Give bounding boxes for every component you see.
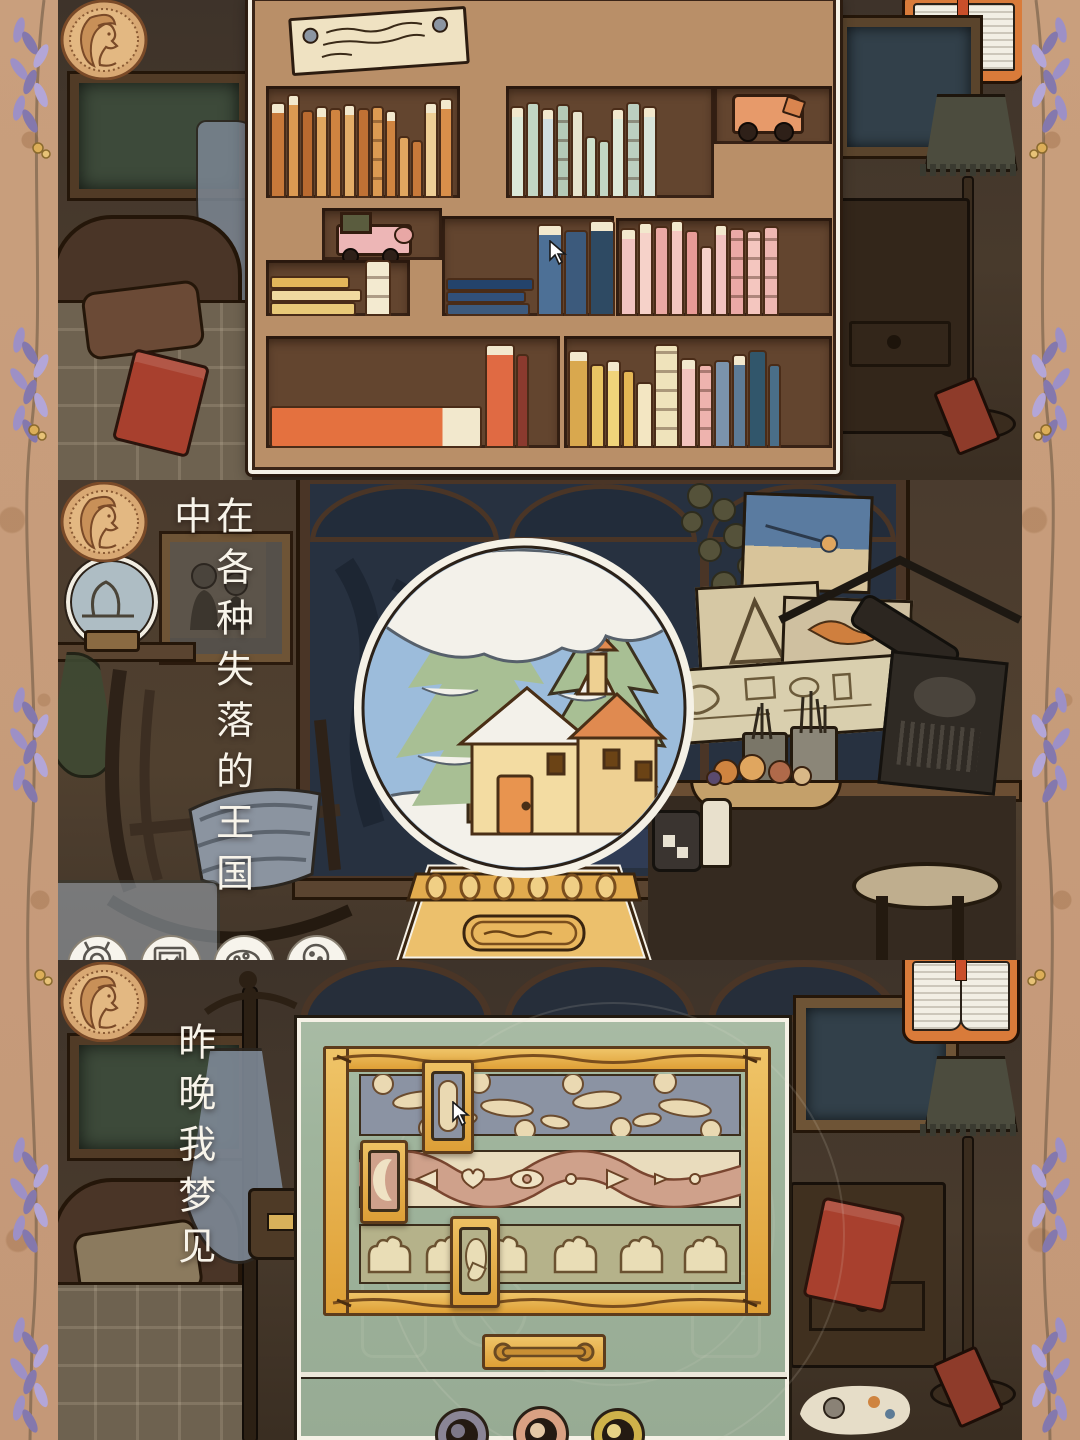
mini-snowglobe-base bbox=[84, 630, 140, 652]
book-spine[interactable] bbox=[371, 106, 384, 198]
shelf-compartment-toy-train[interactable] bbox=[322, 208, 442, 260]
book-spine[interactable] bbox=[485, 344, 515, 448]
book-flat[interactable] bbox=[270, 276, 350, 289]
book-spine[interactable] bbox=[589, 220, 615, 316]
book-spine[interactable] bbox=[357, 108, 370, 198]
frame-left-bar bbox=[323, 1046, 349, 1316]
book-flat[interactable] bbox=[270, 302, 356, 316]
book-spine[interactable] bbox=[398, 136, 410, 198]
book-spine[interactable] bbox=[411, 140, 423, 198]
shelf-note[interactable] bbox=[288, 6, 470, 76]
found-icons-row bbox=[66, 935, 366, 960]
book-spine[interactable] bbox=[638, 222, 653, 316]
book-spine[interactable] bbox=[748, 350, 767, 448]
found-object-button-snowglobe[interactable] bbox=[285, 935, 349, 960]
picture-icon bbox=[146, 938, 194, 960]
book-spine[interactable] bbox=[568, 350, 589, 448]
panel-machine-scene: 昨晚我梦见 bbox=[0, 960, 1080, 1440]
book-spine[interactable] bbox=[516, 354, 529, 448]
pattern-machine bbox=[297, 1018, 789, 1440]
pillow bbox=[80, 279, 205, 361]
book-spine[interactable] bbox=[685, 230, 699, 316]
shelf-compartment-navy-books[interactable] bbox=[442, 216, 614, 316]
panel-snowglobe-scene: 在各种失落的王国中 bbox=[0, 480, 1080, 960]
book-spine[interactable] bbox=[714, 360, 731, 448]
pattern-strip-2 bbox=[359, 1150, 741, 1208]
frame-squiggle bbox=[329, 1294, 765, 1312]
book-flat[interactable] bbox=[270, 289, 362, 302]
flat-book-stack[interactable] bbox=[270, 276, 362, 316]
pattern-slider-3[interactable] bbox=[450, 1216, 500, 1308]
wisteria-vine-right bbox=[1022, 0, 1080, 1440]
shelf-compartment-mixed-books[interactable] bbox=[564, 336, 832, 448]
book-spine[interactable] bbox=[654, 344, 679, 448]
caption-panel3: 昨晚我梦见 bbox=[172, 1022, 214, 1282]
medal-icon bbox=[73, 938, 121, 960]
book-spine[interactable] bbox=[301, 110, 314, 198]
book-spine[interactable] bbox=[729, 228, 745, 316]
book-spine[interactable] bbox=[746, 230, 762, 316]
mouse-cursor bbox=[451, 1101, 471, 1127]
flat-book-stack[interactable] bbox=[446, 278, 534, 316]
caption-panel2: 在各种失落的王国中 bbox=[168, 496, 252, 946]
mouse-cursor bbox=[548, 240, 568, 266]
snow-globe[interactable] bbox=[352, 538, 696, 960]
book-flat[interactable] bbox=[446, 303, 530, 316]
book-spine[interactable] bbox=[343, 104, 356, 198]
machine-handle-plate[interactable] bbox=[482, 1334, 606, 1370]
lamp-fringe bbox=[920, 164, 1016, 176]
coin-girl-portrait bbox=[60, 962, 148, 1042]
book-flat[interactable] bbox=[446, 291, 526, 303]
bed-blanket bbox=[52, 1282, 252, 1440]
stool-leg bbox=[876, 896, 888, 960]
book-spine[interactable] bbox=[329, 108, 342, 198]
book-spine[interactable] bbox=[732, 354, 747, 448]
panel-bookshelf-scene bbox=[0, 0, 1080, 480]
book-spine[interactable] bbox=[698, 364, 713, 448]
leaning-board bbox=[877, 650, 1008, 796]
book-spine[interactable] bbox=[537, 224, 563, 316]
book-spine[interactable] bbox=[424, 102, 438, 198]
bookmark-ribbon bbox=[955, 960, 967, 981]
pattern-slider-2[interactable] bbox=[360, 1140, 408, 1224]
book-spine[interactable] bbox=[654, 226, 669, 316]
milk-bottle bbox=[700, 798, 732, 868]
screenshot-root: 在各种失落的王国中 bbox=[0, 0, 1080, 1440]
flat-book-stack[interactable] bbox=[270, 406, 482, 448]
hanging-open-book bbox=[902, 960, 1020, 1044]
snowglobe-icon bbox=[292, 938, 340, 960]
fruits bbox=[700, 750, 830, 786]
shelf-compartment-pink-books[interactable] bbox=[616, 218, 832, 316]
found-object-button-medal[interactable] bbox=[66, 935, 130, 960]
toy-truck[interactable] bbox=[732, 94, 804, 138]
keeper-coin-medallion[interactable] bbox=[60, 482, 148, 562]
book-spine[interactable] bbox=[626, 102, 641, 198]
book-spine[interactable] bbox=[763, 226, 779, 316]
palette-icon bbox=[219, 938, 267, 960]
toy-train[interactable] bbox=[330, 212, 422, 258]
keeper-coin-medallion[interactable] bbox=[60, 0, 148, 80]
shelf-compartment-orange-flat[interactable] bbox=[266, 336, 560, 448]
pattern-strip-3 bbox=[359, 1224, 741, 1284]
stool bbox=[852, 862, 1002, 910]
book-spine[interactable] bbox=[620, 228, 637, 316]
shelf-compartment-toy-truck[interactable] bbox=[714, 86, 832, 144]
frame-right-bar bbox=[745, 1046, 771, 1316]
book-flat[interactable] bbox=[270, 406, 482, 448]
book-spine[interactable] bbox=[585, 136, 597, 198]
lamp-fringe bbox=[920, 1124, 1016, 1136]
book-spine[interactable] bbox=[642, 106, 657, 198]
book-spine[interactable] bbox=[385, 110, 397, 198]
book-spine[interactable] bbox=[670, 220, 684, 316]
machine-seam bbox=[301, 1372, 787, 1377]
book-spine[interactable] bbox=[606, 360, 621, 448]
book-spine[interactable] bbox=[556, 104, 570, 198]
found-object-button-picture[interactable] bbox=[139, 935, 203, 960]
paint-palette bbox=[790, 1374, 920, 1440]
bookshelf bbox=[248, 0, 840, 474]
book-spine[interactable] bbox=[714, 224, 728, 316]
book-spine[interactable] bbox=[590, 364, 605, 448]
book-spine[interactable] bbox=[287, 94, 300, 198]
shelf-compartment-mint-books[interactable] bbox=[506, 86, 714, 198]
shelf-compartment-orange-books[interactable] bbox=[266, 86, 460, 198]
shelf-compartment-cream-stack[interactable] bbox=[266, 260, 410, 316]
book-spine[interactable] bbox=[365, 260, 391, 316]
book-spine[interactable] bbox=[439, 98, 453, 198]
coat-rack-hooks bbox=[196, 968, 306, 1028]
pattern-strip-1 bbox=[359, 1074, 741, 1136]
book-spine[interactable] bbox=[571, 110, 584, 198]
floor-lamp-shade bbox=[924, 1056, 1018, 1132]
coin-girl-portrait bbox=[60, 482, 148, 562]
frame-squiggle bbox=[329, 1050, 765, 1068]
book-spine[interactable] bbox=[680, 358, 697, 448]
book-spine[interactable] bbox=[541, 108, 555, 198]
book-spine[interactable] bbox=[768, 364, 781, 448]
book-spine[interactable] bbox=[270, 102, 286, 198]
book-spine[interactable] bbox=[700, 246, 713, 316]
found-object-button-palette[interactable] bbox=[212, 935, 276, 960]
coin-girl-portrait bbox=[60, 0, 148, 80]
book-spine[interactable] bbox=[526, 102, 540, 198]
wisteria-vine-left bbox=[0, 0, 58, 1440]
book-spine[interactable] bbox=[622, 370, 635, 448]
note-scribbles bbox=[291, 9, 460, 66]
keeper-coin-medallion[interactable] bbox=[60, 962, 148, 1042]
book-spine[interactable] bbox=[636, 382, 653, 448]
book-flat[interactable] bbox=[446, 278, 534, 291]
book-spine[interactable] bbox=[315, 106, 328, 198]
book-spine[interactable] bbox=[598, 140, 610, 198]
floor-lamp-shade bbox=[924, 94, 1018, 172]
stool-leg bbox=[952, 896, 964, 960]
book-spine[interactable] bbox=[611, 108, 625, 198]
book-spine[interactable] bbox=[510, 106, 525, 198]
